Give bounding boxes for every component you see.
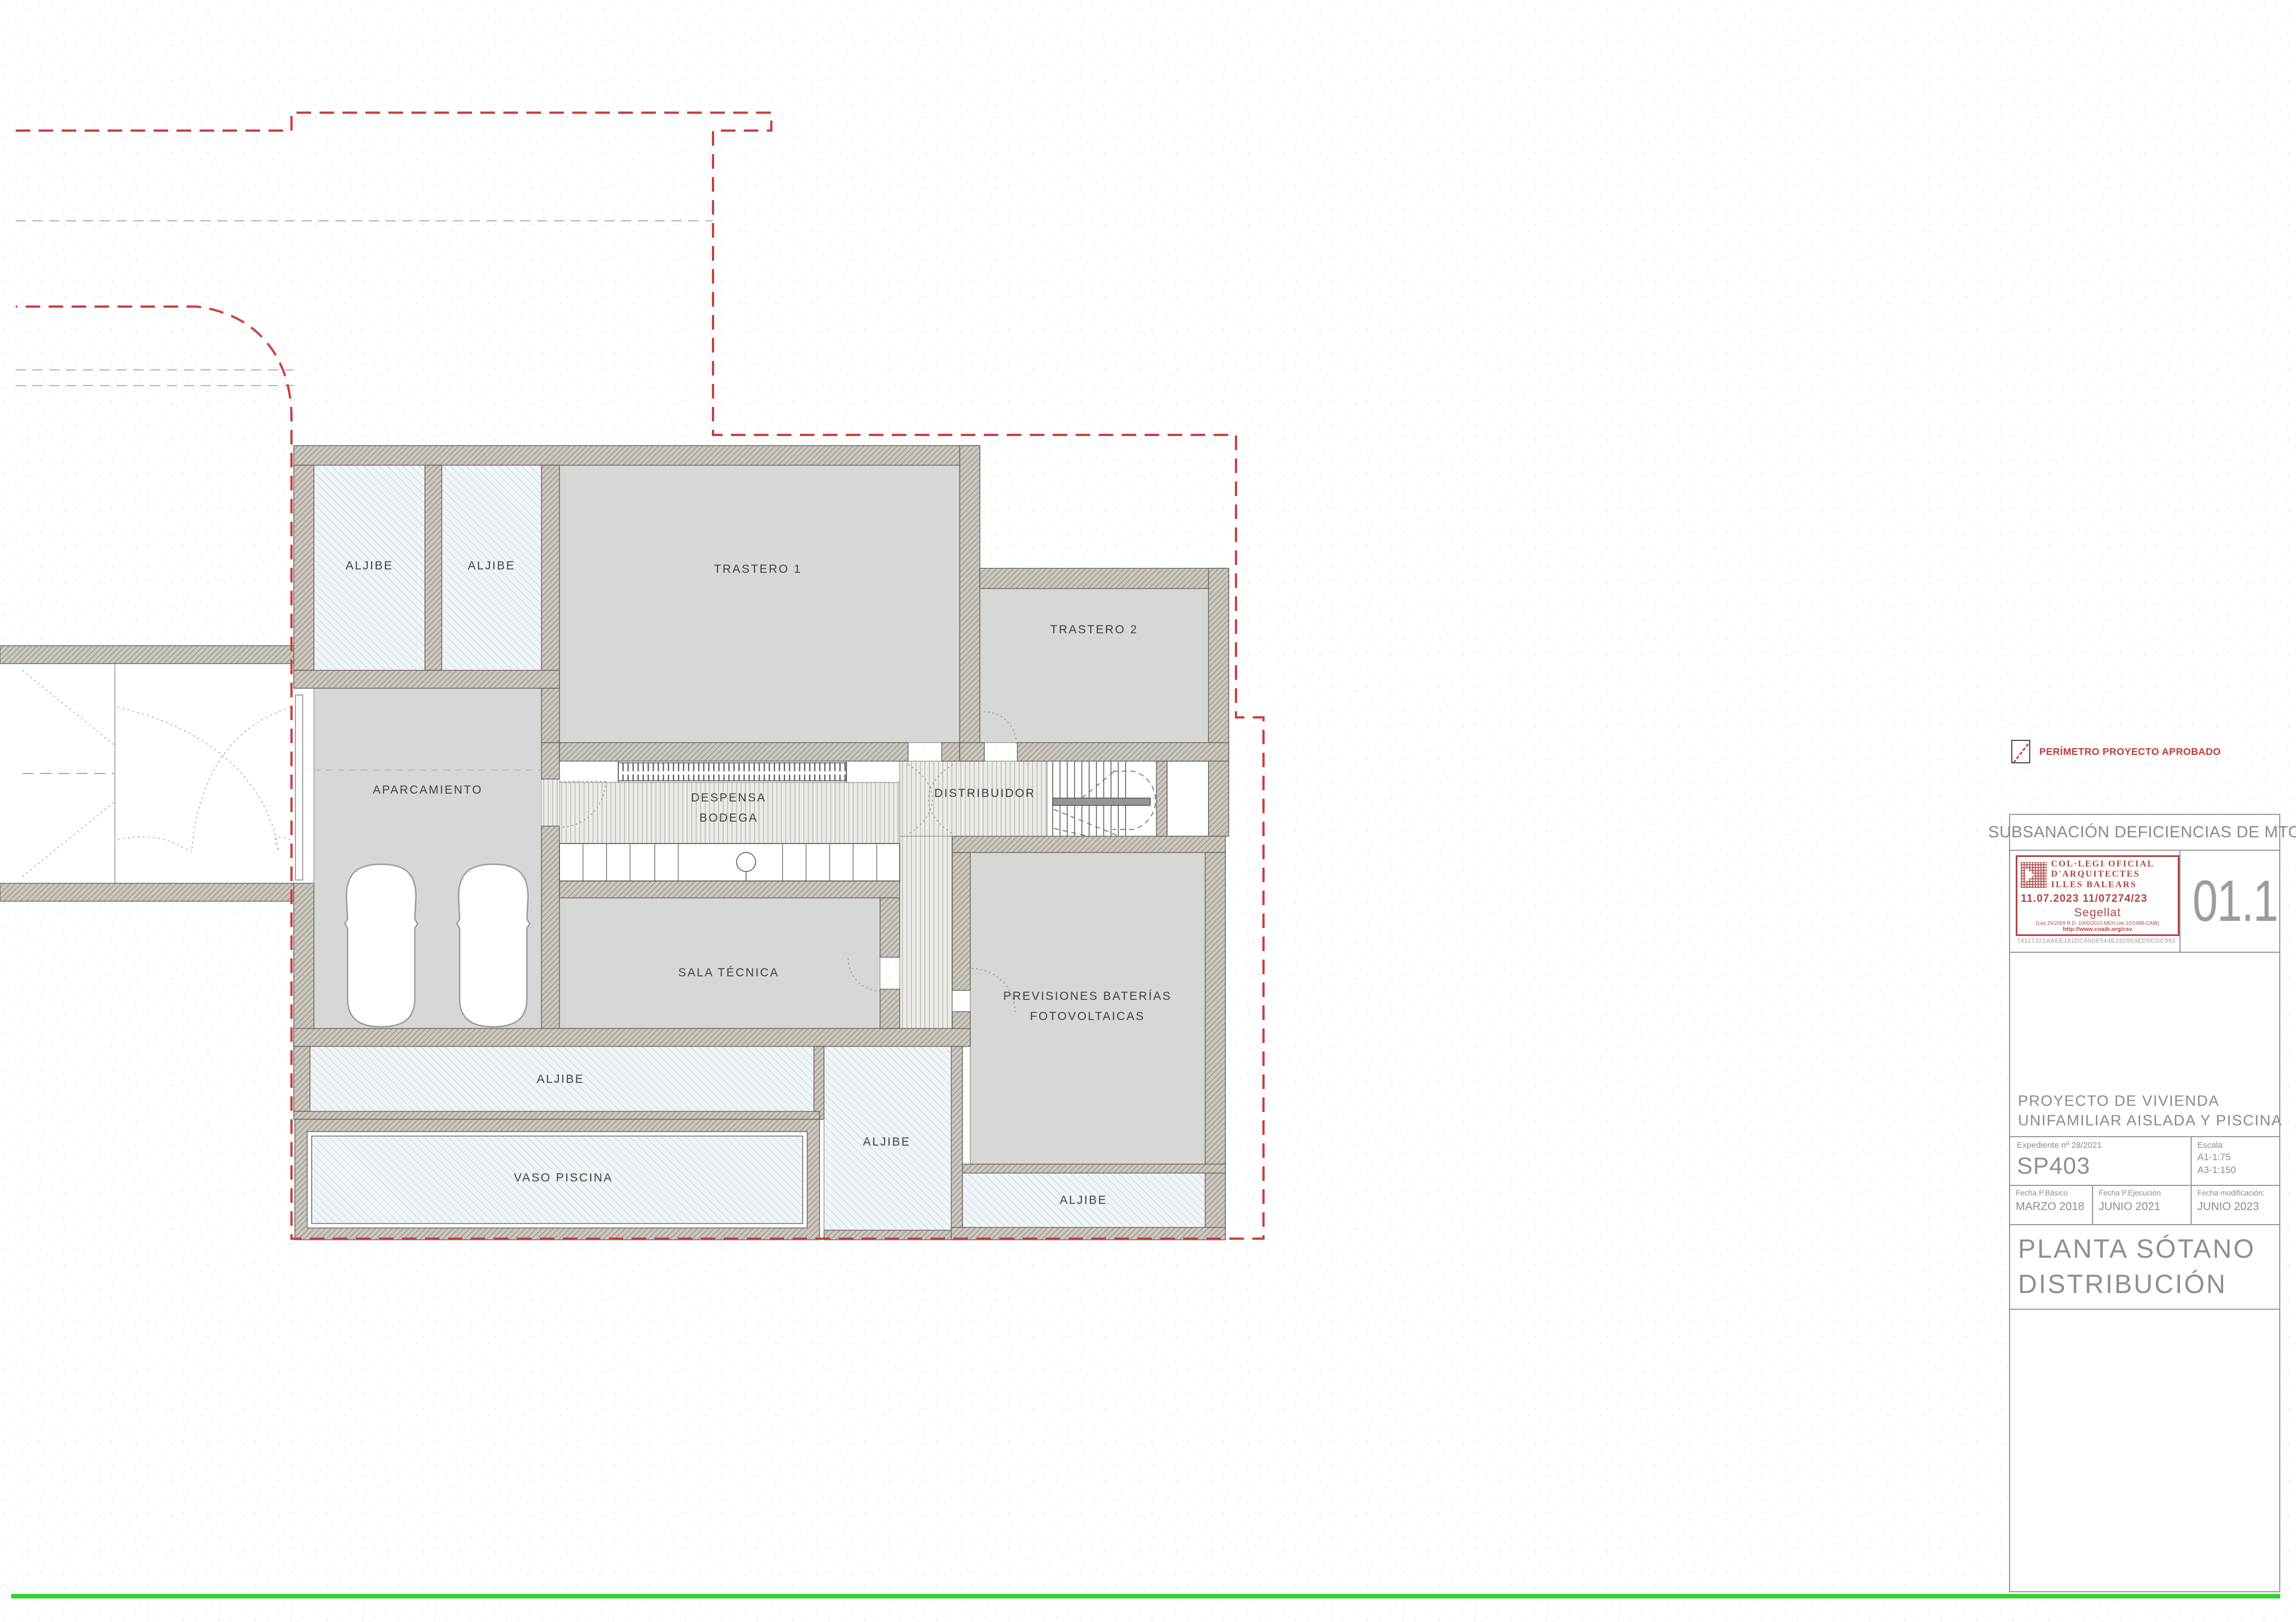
fecha-modificacion-cell: Fecha modificación: JUNIO 2023 [2191,1186,2279,1224]
escala-a1: A1-1:75 [2197,1152,2279,1163]
fecha-ejecucion-label: Fecha P.Ejecución [2099,1189,2191,1197]
despensa-door-strip [541,779,559,826]
escala-label: Escala: [2197,1141,2279,1150]
stamp-url-line: http://www.coaib.org/csv [2021,926,2174,933]
fecha-basico-label: Fecha P.Básico [2016,1189,2092,1197]
car-2 [457,864,530,1027]
label-despensa-1: DESPENSA [691,791,766,804]
project-title-line1: PROYECTO DE VIVIENDA [2018,1091,2279,1111]
perimeter-legend-icon [2011,740,2030,763]
label-aljibe-1: ALJIBE [345,559,393,572]
label-aljibe-3: ALJIBE [536,1073,584,1086]
sheet-number: 01.1 [2192,872,2278,930]
perimeter-legend-label: PERÍMETRO PROYECTO APROBADO [2039,746,2221,758]
expediente-label: Expediente nº 28/2021 [2017,1141,2191,1150]
bodega-counter [559,844,900,881]
fechas-row: Fecha P.Básico MARZO 2018 Fecha P.Ejecuc… [2010,1186,2279,1225]
coaib-logo-icon [2021,862,2047,888]
label-aljibe-5: ALJIBE [1059,1194,1107,1207]
escala-cell: Escala: A1-1:75 A3-1:150 [2191,1137,2279,1185]
fecha-modificacion-value: JUNIO 2023 [2197,1201,2279,1213]
stamp-hash: 74117321AAEE181DC650E543E192953ED5CDC992 [2017,938,2179,944]
stamp-sealed-label: Segellat [2021,906,2174,920]
empty-panel [2010,1310,2279,1551]
label-vaso-piscina: VASO PISCINA [514,1171,613,1184]
approved-green-line [11,1594,2280,1598]
sheet-number-cell: 01.1 [2179,851,2289,952]
room-distribuidor-strip [900,836,952,1028]
label-trastero-2: TRASTERO 2 [1050,623,1138,636]
label-distribuidor: DISTRIBUIDOR [934,787,1036,800]
room-trastero-1 [559,465,960,743]
title-block-header: SUBSANACIÓN DEFICIENCIAS DE MTO [2010,815,2279,851]
fecha-basico-cell: Fecha P.Básico MARZO 2018 [2010,1186,2092,1224]
label-trastero-1: TRASTERO 1 [714,563,802,576]
stair-rail [1053,798,1150,805]
stamp-name: COL·LEGI OFICIAL D'ARQUITECTES ILLES BAL… [2051,859,2154,890]
title-block: SUBSANACIÓN DEFICIENCIAS DE MTO COL·LEGI… [2009,814,2280,1592]
label-despensa-2: BODEGA [700,812,758,824]
escala-a3: A3-1:150 [2197,1165,2279,1176]
label-aljibe-4: ALJIBE [863,1136,910,1148]
expediente-cell: Expediente nº 28/2021 SP403 [2010,1137,2191,1185]
stamp-row: COL·LEGI OFICIAL D'ARQUITECTES ILLES BAL… [2010,851,2279,953]
label-aparcamiento: APARCAMIENTO [373,784,483,796]
room-trastero-2 [980,588,1209,743]
stamp-law-line: (Ley 25/2009 R.D. 1000/2010-MEH Llei 10/… [2021,920,2174,926]
drawing-title-line2: DISTRIBUCIÓN [2018,1266,2279,1301]
legend-perimeter: PERÍMETRO PROYECTO APROBADO [2011,739,2275,764]
fecha-basico-value: MARZO 2018 [2016,1201,2092,1213]
label-aljibe-2: ALJIBE [467,559,515,572]
wine-rack [618,763,846,781]
expediente-row: Expediente nº 28/2021 SP403 Escala: A1-1… [2010,1137,2279,1186]
project-title-cell: PROYECTO DE VIVIENDA UNIFAMILIAR AISLADA… [2010,953,2279,1137]
project-title-line2: UNIFAMILIAR AISLADA Y PISCINA [2018,1111,2279,1130]
car-1 [345,864,418,1027]
screenshot-root: { "plan": { "rooms": [ {"id":"aljibe-1",… [0,0,2296,1622]
room-previsiones [970,852,1205,1164]
drawing-title-line1: PLANTA SÓTANO [2018,1231,2279,1266]
driveway-corridor [0,664,294,883]
label-previsiones-1: PREVISIONES BATERÍAS [1003,990,1172,1003]
floor-plan-svg: ALJIBE ALJIBE TRASTERO 1 TRASTERO 2 APAR… [0,0,2296,1622]
garage-door-leaf [295,695,303,880]
room-sala-tecnica [559,898,880,1028]
label-sala-tecnica: SALA TÉCNICA [678,966,779,979]
drawing-title-cell: PLANTA SÓTANO DISTRIBUCIÓN [2010,1225,2279,1310]
stamp-date-line: 11.07.2023 11/07274/23 [2021,893,2174,905]
fecha-ejecucion-value: JUNIO 2021 [2099,1201,2191,1213]
coaib-stamp: COL·LEGI OFICIAL D'ARQUITECTES ILLES BAL… [2016,855,2179,936]
lightwell-niche [1167,761,1209,836]
label-previsiones-2: FOTOVOLTAICAS [1030,1010,1145,1023]
fecha-ejecucion-cell: Fecha P.Ejecución JUNIO 2021 [2092,1186,2191,1224]
project-code: SP403 [2017,1152,2191,1179]
fecha-modificacion-label: Fecha modificación: [2197,1189,2279,1197]
stamp-cell: COL·LEGI OFICIAL D'ARQUITECTES ILLES BAL… [2010,851,2179,952]
